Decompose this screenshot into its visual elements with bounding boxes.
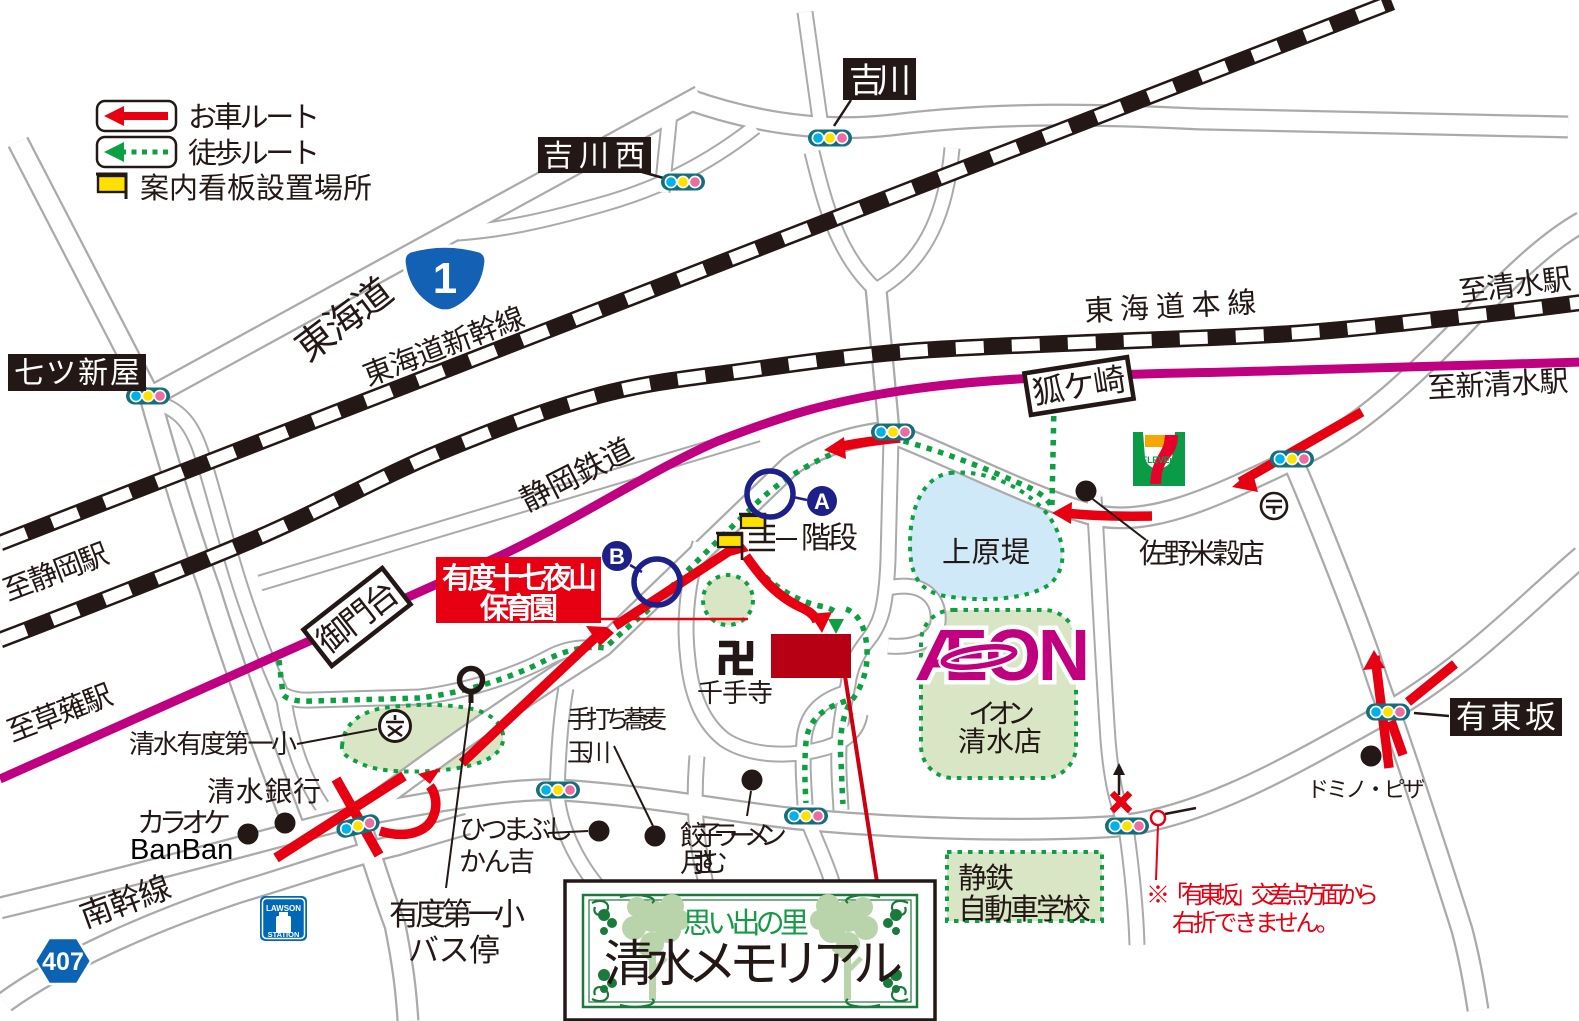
svg-text:※「有東坂」交差点方面から: ※「有東坂」交差点方面から bbox=[1146, 882, 1379, 909]
svg-text:イオン: イオン bbox=[968, 698, 1035, 729]
svg-text:有度第一小: 有度第一小 bbox=[389, 897, 525, 932]
svg-text:STATION: STATION bbox=[268, 930, 300, 939]
svg-text:千手寺: 千手寺 bbox=[697, 678, 773, 708]
svg-text:B: B bbox=[609, 544, 625, 569]
svg-text:餃子ラーメン: 餃子ラーメン bbox=[680, 821, 787, 851]
svg-text:保育園: 保育園 bbox=[479, 591, 558, 625]
svg-text:LAWSON: LAWSON bbox=[266, 904, 301, 913]
svg-text:清水メモリアル: 清水メモリアル bbox=[604, 936, 903, 992]
svg-text:月さむ: 月さむ bbox=[680, 848, 728, 878]
svg-text:清水銀行: 清水銀行 bbox=[207, 776, 321, 807]
svg-text:佐野米穀店: 佐野米穀店 bbox=[1139, 538, 1265, 569]
svg-text:手打ち蕎麦: 手打ち蕎麦 bbox=[567, 706, 667, 734]
svg-text:静鉄: 静鉄 bbox=[958, 862, 1014, 895]
svg-text:有東坂: 有東坂 bbox=[1456, 700, 1556, 735]
svg-text:ひつまぶし: ひつまぶし bbox=[459, 815, 573, 845]
svg-text:407: 407 bbox=[42, 948, 84, 976]
svg-text:上原堤: 上原堤 bbox=[942, 537, 1030, 569]
svg-text:BanBan: BanBan bbox=[130, 834, 233, 866]
svg-text:1: 1 bbox=[433, 254, 457, 303]
svg-text:階段: 階段 bbox=[801, 522, 858, 555]
svg-text:案内看板設置場所: 案内看板設置場所 bbox=[140, 172, 372, 205]
svg-text:徒歩ルート: 徒歩ルート bbox=[188, 137, 320, 170]
svg-text:かん吉: かん吉 bbox=[459, 847, 535, 877]
svg-text:A: A bbox=[814, 489, 830, 514]
svg-text:お車ルート: お車ルート bbox=[188, 101, 320, 134]
svg-text:自動車学校: 自動車学校 bbox=[958, 893, 1091, 926]
svg-text:吉川西: 吉川西 bbox=[543, 140, 645, 173]
svg-text:清水店: 清水店 bbox=[958, 726, 1042, 757]
svg-text:バス停: バス停 bbox=[408, 933, 500, 968]
svg-text:清水有度第一小: 清水有度第一小 bbox=[129, 729, 297, 759]
svg-text:右折できません。: 右折できません。 bbox=[1172, 910, 1340, 937]
svg-text:吉川: 吉川 bbox=[849, 62, 911, 100]
svg-text:ELEVEn: ELEVEn bbox=[1141, 455, 1174, 465]
svg-text:ドミノ・ピザ: ドミノ・ピザ bbox=[1307, 777, 1425, 802]
svg-text:玉川: 玉川 bbox=[567, 739, 611, 767]
svg-text:有度十七夜山: 有度十七夜山 bbox=[442, 561, 597, 595]
